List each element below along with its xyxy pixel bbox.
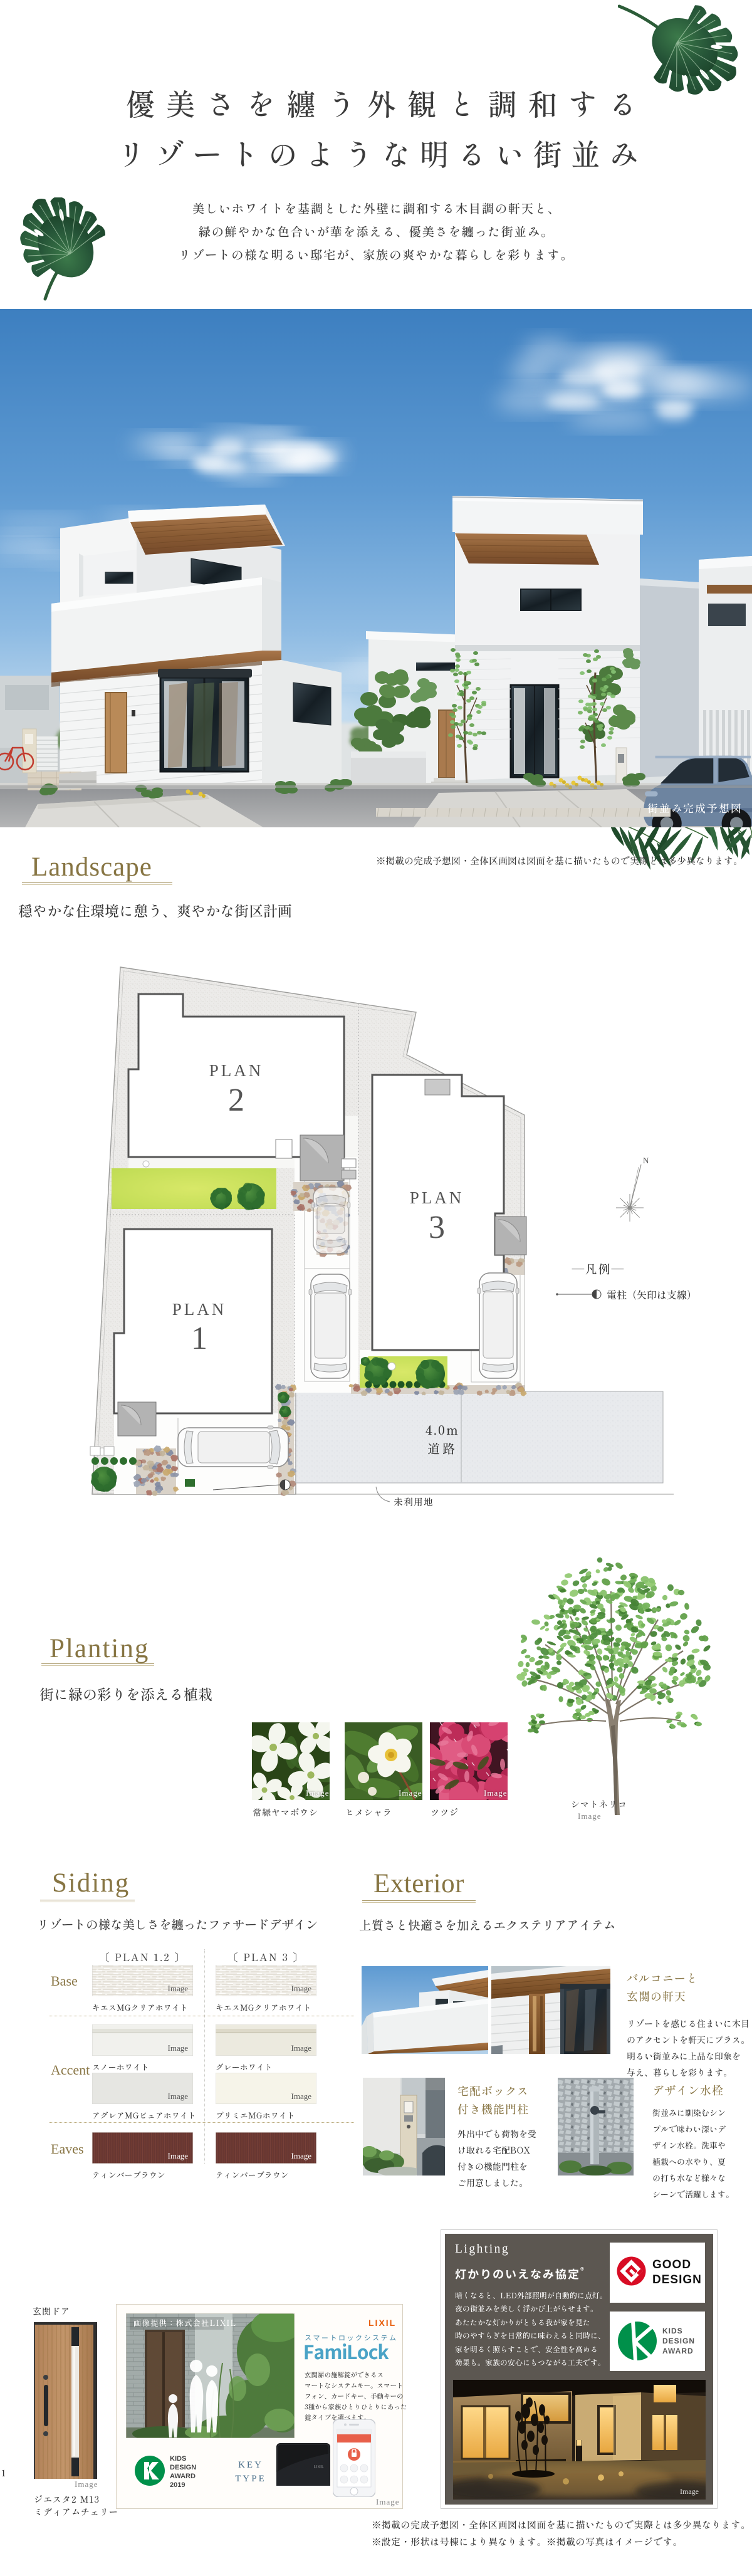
svg-text:道路: 道路 [427, 1439, 457, 1457]
svg-text:Image: Image [291, 1984, 312, 1993]
svg-text:2019: 2019 [170, 2481, 185, 2489]
svg-text:KIDS: KIDS [170, 2455, 186, 2463]
svg-text:未利用地: 未利用地 [394, 1495, 434, 1509]
svg-text:Image: Image [168, 2092, 189, 2101]
svg-text:電柱（矢印は支線）: 電柱（矢印は支線） [607, 1287, 697, 1302]
svg-text:GOOD: GOOD [652, 2258, 691, 2271]
svg-text:Image: Image [168, 2151, 189, 2160]
svg-text:AWARD: AWARD [170, 2473, 196, 2480]
svg-text:DESIGN: DESIGN [662, 2337, 695, 2345]
svg-text:Image: Image [168, 2043, 189, 2053]
svg-text:PLAN: PLAN [209, 1061, 264, 1080]
svg-text:DESIGN: DESIGN [652, 2273, 702, 2286]
svg-text:2: 2 [228, 1082, 244, 1118]
svg-text:LIXIL: LIXIL [314, 2465, 324, 2469]
svg-text:PLAN: PLAN [172, 1300, 227, 1319]
svg-text:PLAN: PLAN [410, 1188, 464, 1207]
svg-text:Image: Image [291, 2092, 312, 2101]
svg-text:1: 1 [191, 1321, 207, 1356]
svg-text:画像提供：株式会社LIXIL: 画像提供：株式会社LIXIL [133, 2317, 236, 2328]
svg-text:4.0m: 4.0m [426, 1420, 459, 1438]
svg-text:Image: Image [291, 2043, 312, 2053]
svg-text:DESIGN: DESIGN [170, 2464, 196, 2471]
svg-text:KIDS: KIDS [662, 2327, 683, 2335]
svg-text:街並み完成予想図: 街並み完成予想図 [647, 800, 743, 815]
svg-text:―凡例―: ―凡例― [572, 1260, 625, 1277]
svg-text:Image: Image [680, 2487, 699, 2496]
svg-text:N: N [643, 1156, 649, 1165]
svg-text:AWARD: AWARD [662, 2347, 694, 2355]
svg-text:Image: Image [168, 1984, 189, 1993]
svg-text:3: 3 [429, 1210, 445, 1245]
svg-text:Image: Image [291, 2151, 312, 2160]
